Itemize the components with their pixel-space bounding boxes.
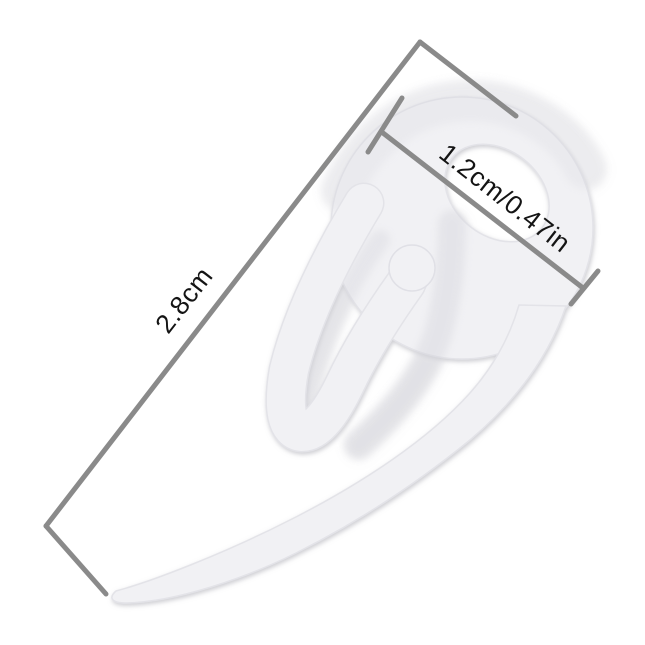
product-photo: 2.8cm 1.2cm/0.47in <box>0 0 645 645</box>
curtain-hook-image: 2.8cm 1.2cm/0.47in <box>0 0 645 645</box>
hook-knob <box>389 245 435 291</box>
